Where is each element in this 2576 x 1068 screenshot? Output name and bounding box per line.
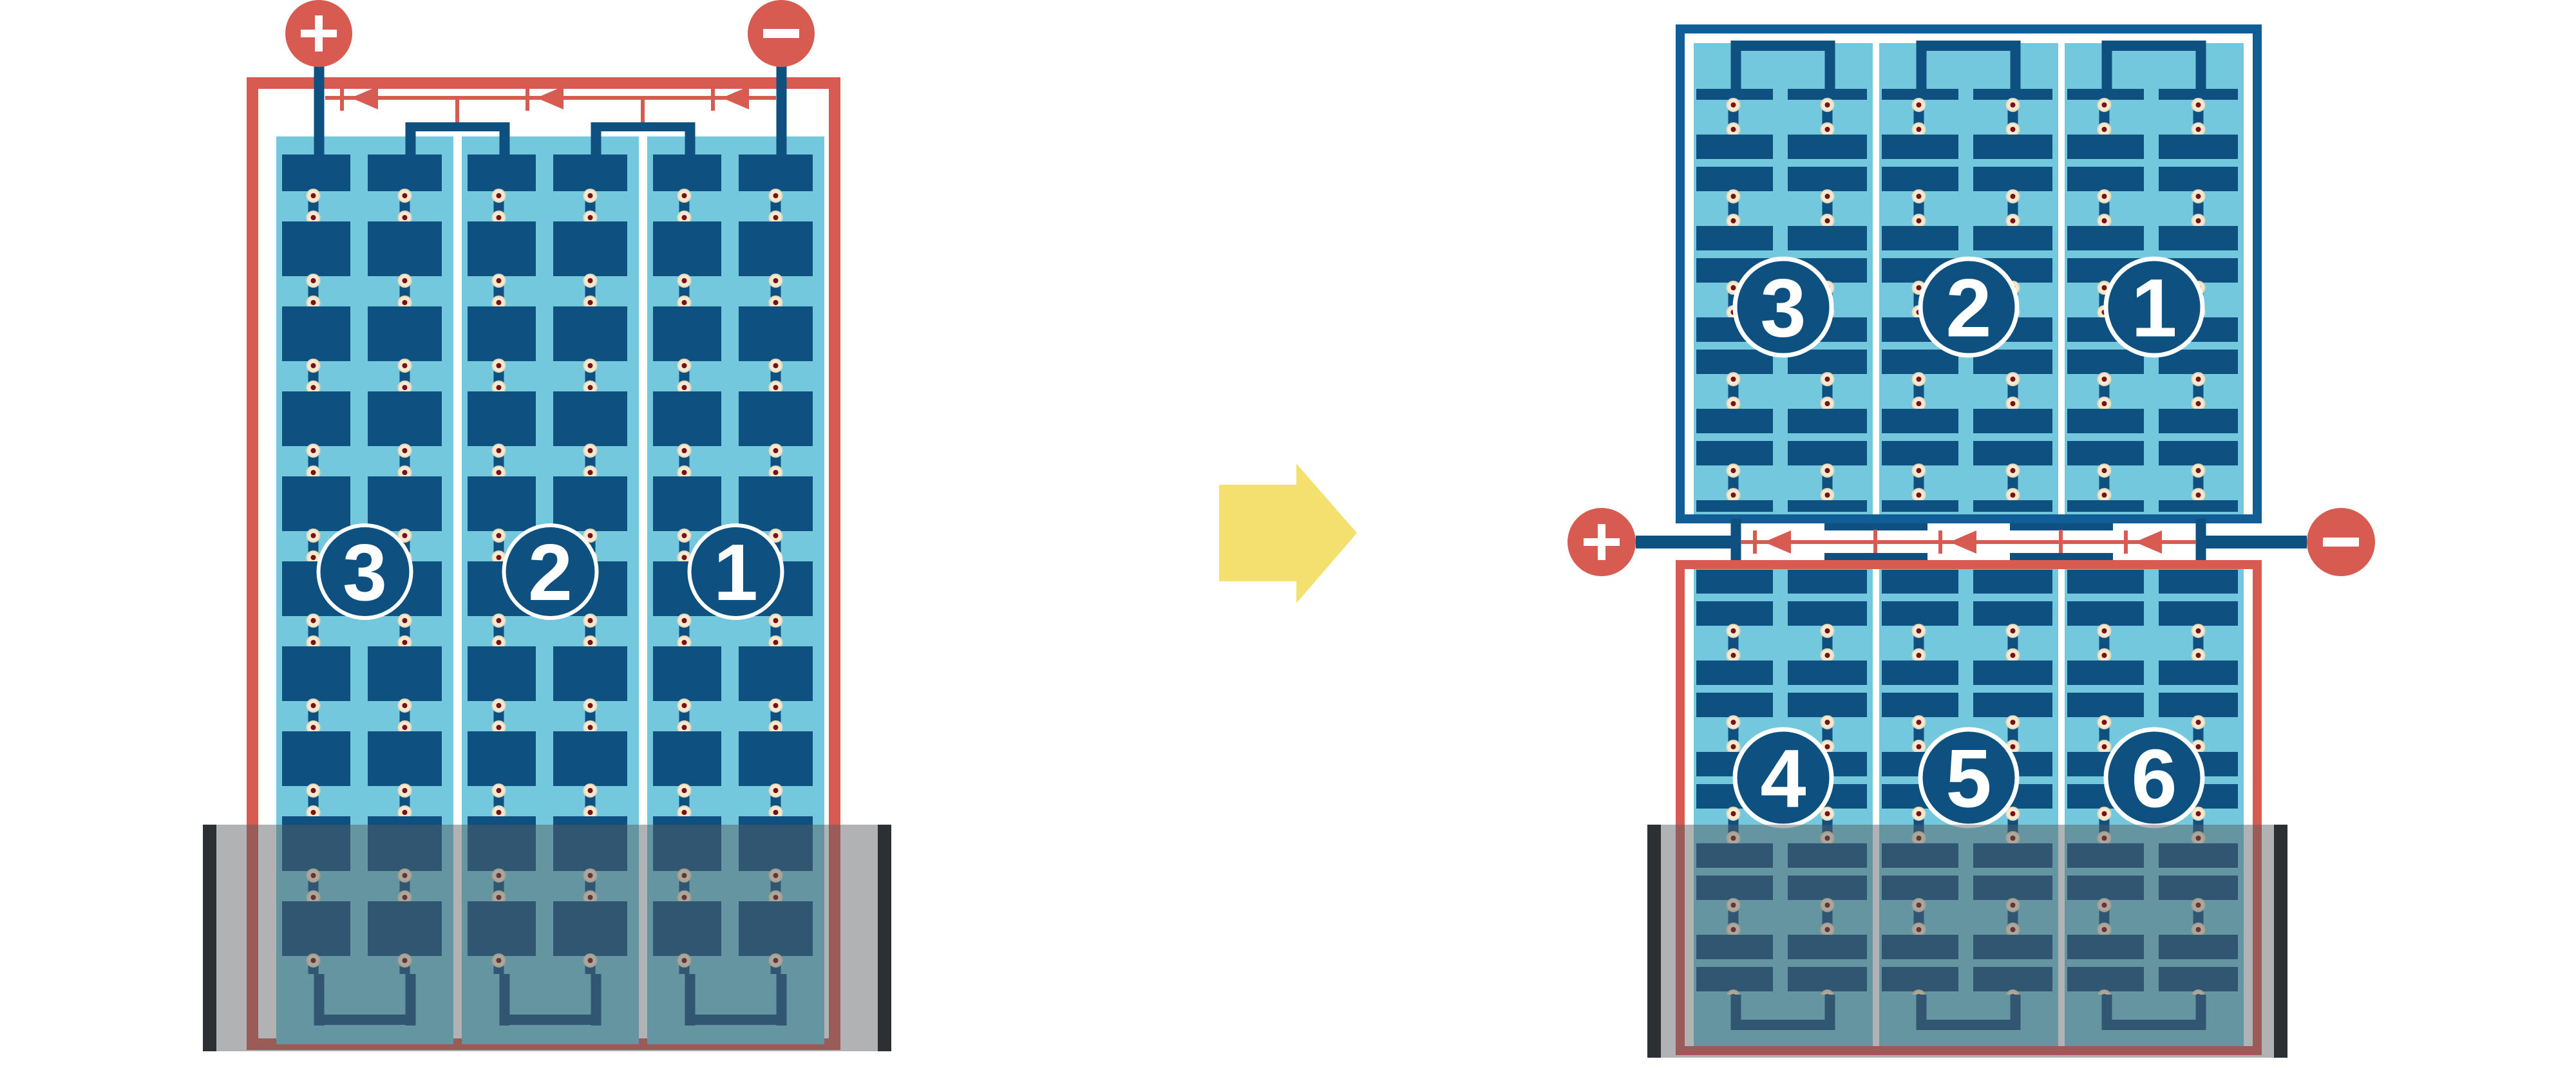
diagram-canvas: 3 2 1 3 [0,0,2576,1068]
rail-end-cap [1647,825,1661,1058]
bus-stub [1824,553,1927,560]
panel-number-label: 2 [1946,263,1991,355]
after-top-string: 3 2 1 [1680,29,2257,519]
becomes-arrow-icon [1219,464,1357,603]
panel-number-label: 5 [1946,733,1991,825]
panel-number-badge: 5 [1920,729,2017,826]
panel-number-label: 1 [2131,263,2177,355]
current-path-with-diodes [325,86,776,122]
panel-number-badge: 3 [1735,259,1832,355]
after-bottom-string: 4 5 6 [1647,565,2287,1058]
panel-number-label: 3 [1760,263,1806,355]
panel-number-badge: 3 [319,525,412,618]
shade-overlay [203,825,891,1051]
panel-number-label: 6 [2131,733,2177,825]
string-link-bar [1731,519,1741,560]
negative-lead [2206,536,2307,548]
after-array: 3 2 1 [1567,29,2375,1058]
panel-number-label: 2 [528,529,573,617]
minus-terminal-icon [748,0,815,67]
plus-terminal-icon [1567,508,1636,576]
panel-number-badge: 1 [690,525,782,618]
solar-array-rewiring-diagram: 3 2 1 3 [0,0,2576,1068]
panel-number-badge: 1 [2106,259,2202,355]
string-link-bar [2196,519,2206,560]
rail-end-cap [878,825,891,1051]
positive-lead [314,64,325,155]
current-path-with-diodes [1741,530,2196,554]
rail-end-cap [2274,825,2287,1058]
panel-number-label: 1 [714,529,758,617]
plus-terminal-icon [285,0,352,67]
bus-stub [1824,523,1927,530]
bus-stub [2010,523,2113,530]
negative-lead [777,64,787,155]
rail-end-cap [203,825,216,1051]
panel-number-label: 3 [343,529,387,617]
panel-number-label: 4 [1760,733,1806,825]
before-array: 3 2 1 [203,0,891,1051]
bus-stub [2010,553,2113,560]
minus-terminal-icon [2307,508,2375,576]
panel-number-badge: 2 [1920,259,2017,355]
positive-lead [1636,536,1731,548]
panel-number-badge: 4 [1735,729,1832,826]
shade-overlay [1647,825,2287,1058]
panel-number-badge: 6 [2106,729,2202,826]
panel-number-badge: 2 [504,525,597,618]
